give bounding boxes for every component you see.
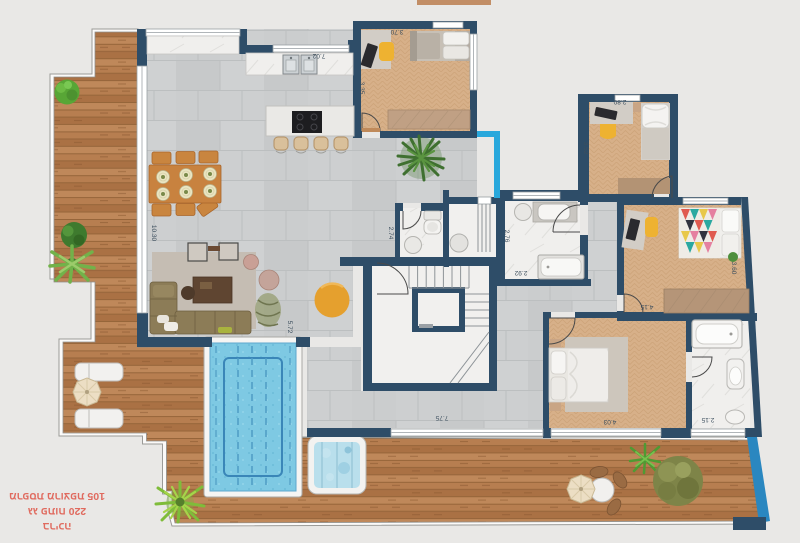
svg-text:בריכה: בריכה [42, 520, 71, 532]
svg-text:3.35: 3.35 [358, 82, 365, 95]
svg-text:2.92: 2.92 [514, 269, 527, 276]
svg-text:10.30: 10.30 [150, 225, 157, 242]
svg-text:7.75: 7.75 [435, 414, 448, 421]
svg-text:2.15: 2.15 [701, 416, 714, 423]
svg-text:2.80: 2.80 [613, 98, 626, 105]
svg-text:גג פתוח 220: גג פתוח 220 [28, 505, 86, 517]
svg-text:3.60: 3.60 [730, 262, 737, 275]
svg-text:4.03: 4.03 [603, 418, 616, 425]
svg-text:5.72: 5.72 [286, 321, 293, 334]
svg-text:מרפסת מרוצפת 105: מרפסת מרוצפת 105 [9, 490, 105, 502]
svg-text:7.02: 7.02 [312, 52, 325, 59]
svg-text:3.52: 3.52 [582, 142, 589, 155]
svg-text:4.15: 4.15 [640, 303, 653, 310]
svg-text:3.70: 3.70 [390, 28, 403, 35]
svg-text:2.76: 2.76 [503, 230, 510, 243]
svg-text:2.74: 2.74 [387, 227, 394, 240]
